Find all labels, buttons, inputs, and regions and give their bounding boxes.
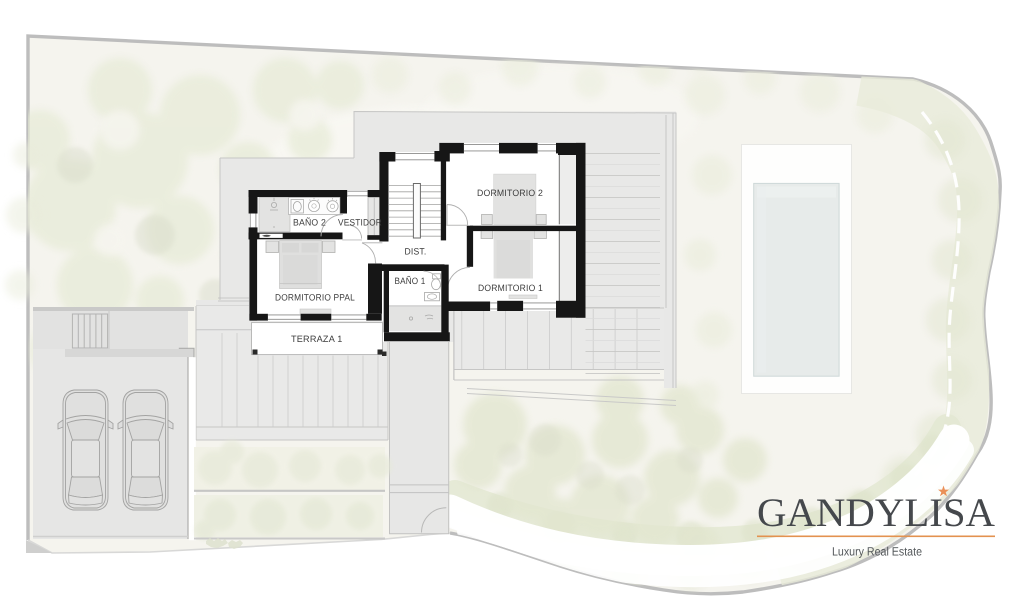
svg-text:Luxury Real Estate: Luxury Real Estate (832, 545, 922, 559)
svg-text:BAÑO 1: BAÑO 1 (395, 275, 426, 286)
svg-text:DIST.: DIST. (405, 247, 427, 257)
svg-text:DORMITORIO 2: DORMITORIO 2 (477, 188, 543, 198)
svg-text:BAÑO 2: BAÑO 2 (293, 217, 326, 228)
svg-text:VESTIDOR: VESTIDOR (338, 218, 382, 228)
svg-text:TERRAZA 1: TERRAZA 1 (291, 334, 343, 344)
svg-text:DORMITORIO PPAL: DORMITORIO PPAL (275, 293, 355, 303)
svg-text:GANDYLISA: GANDYLISA (757, 490, 995, 535)
svg-text:DORMITORIO 1: DORMITORIO 1 (478, 283, 543, 293)
